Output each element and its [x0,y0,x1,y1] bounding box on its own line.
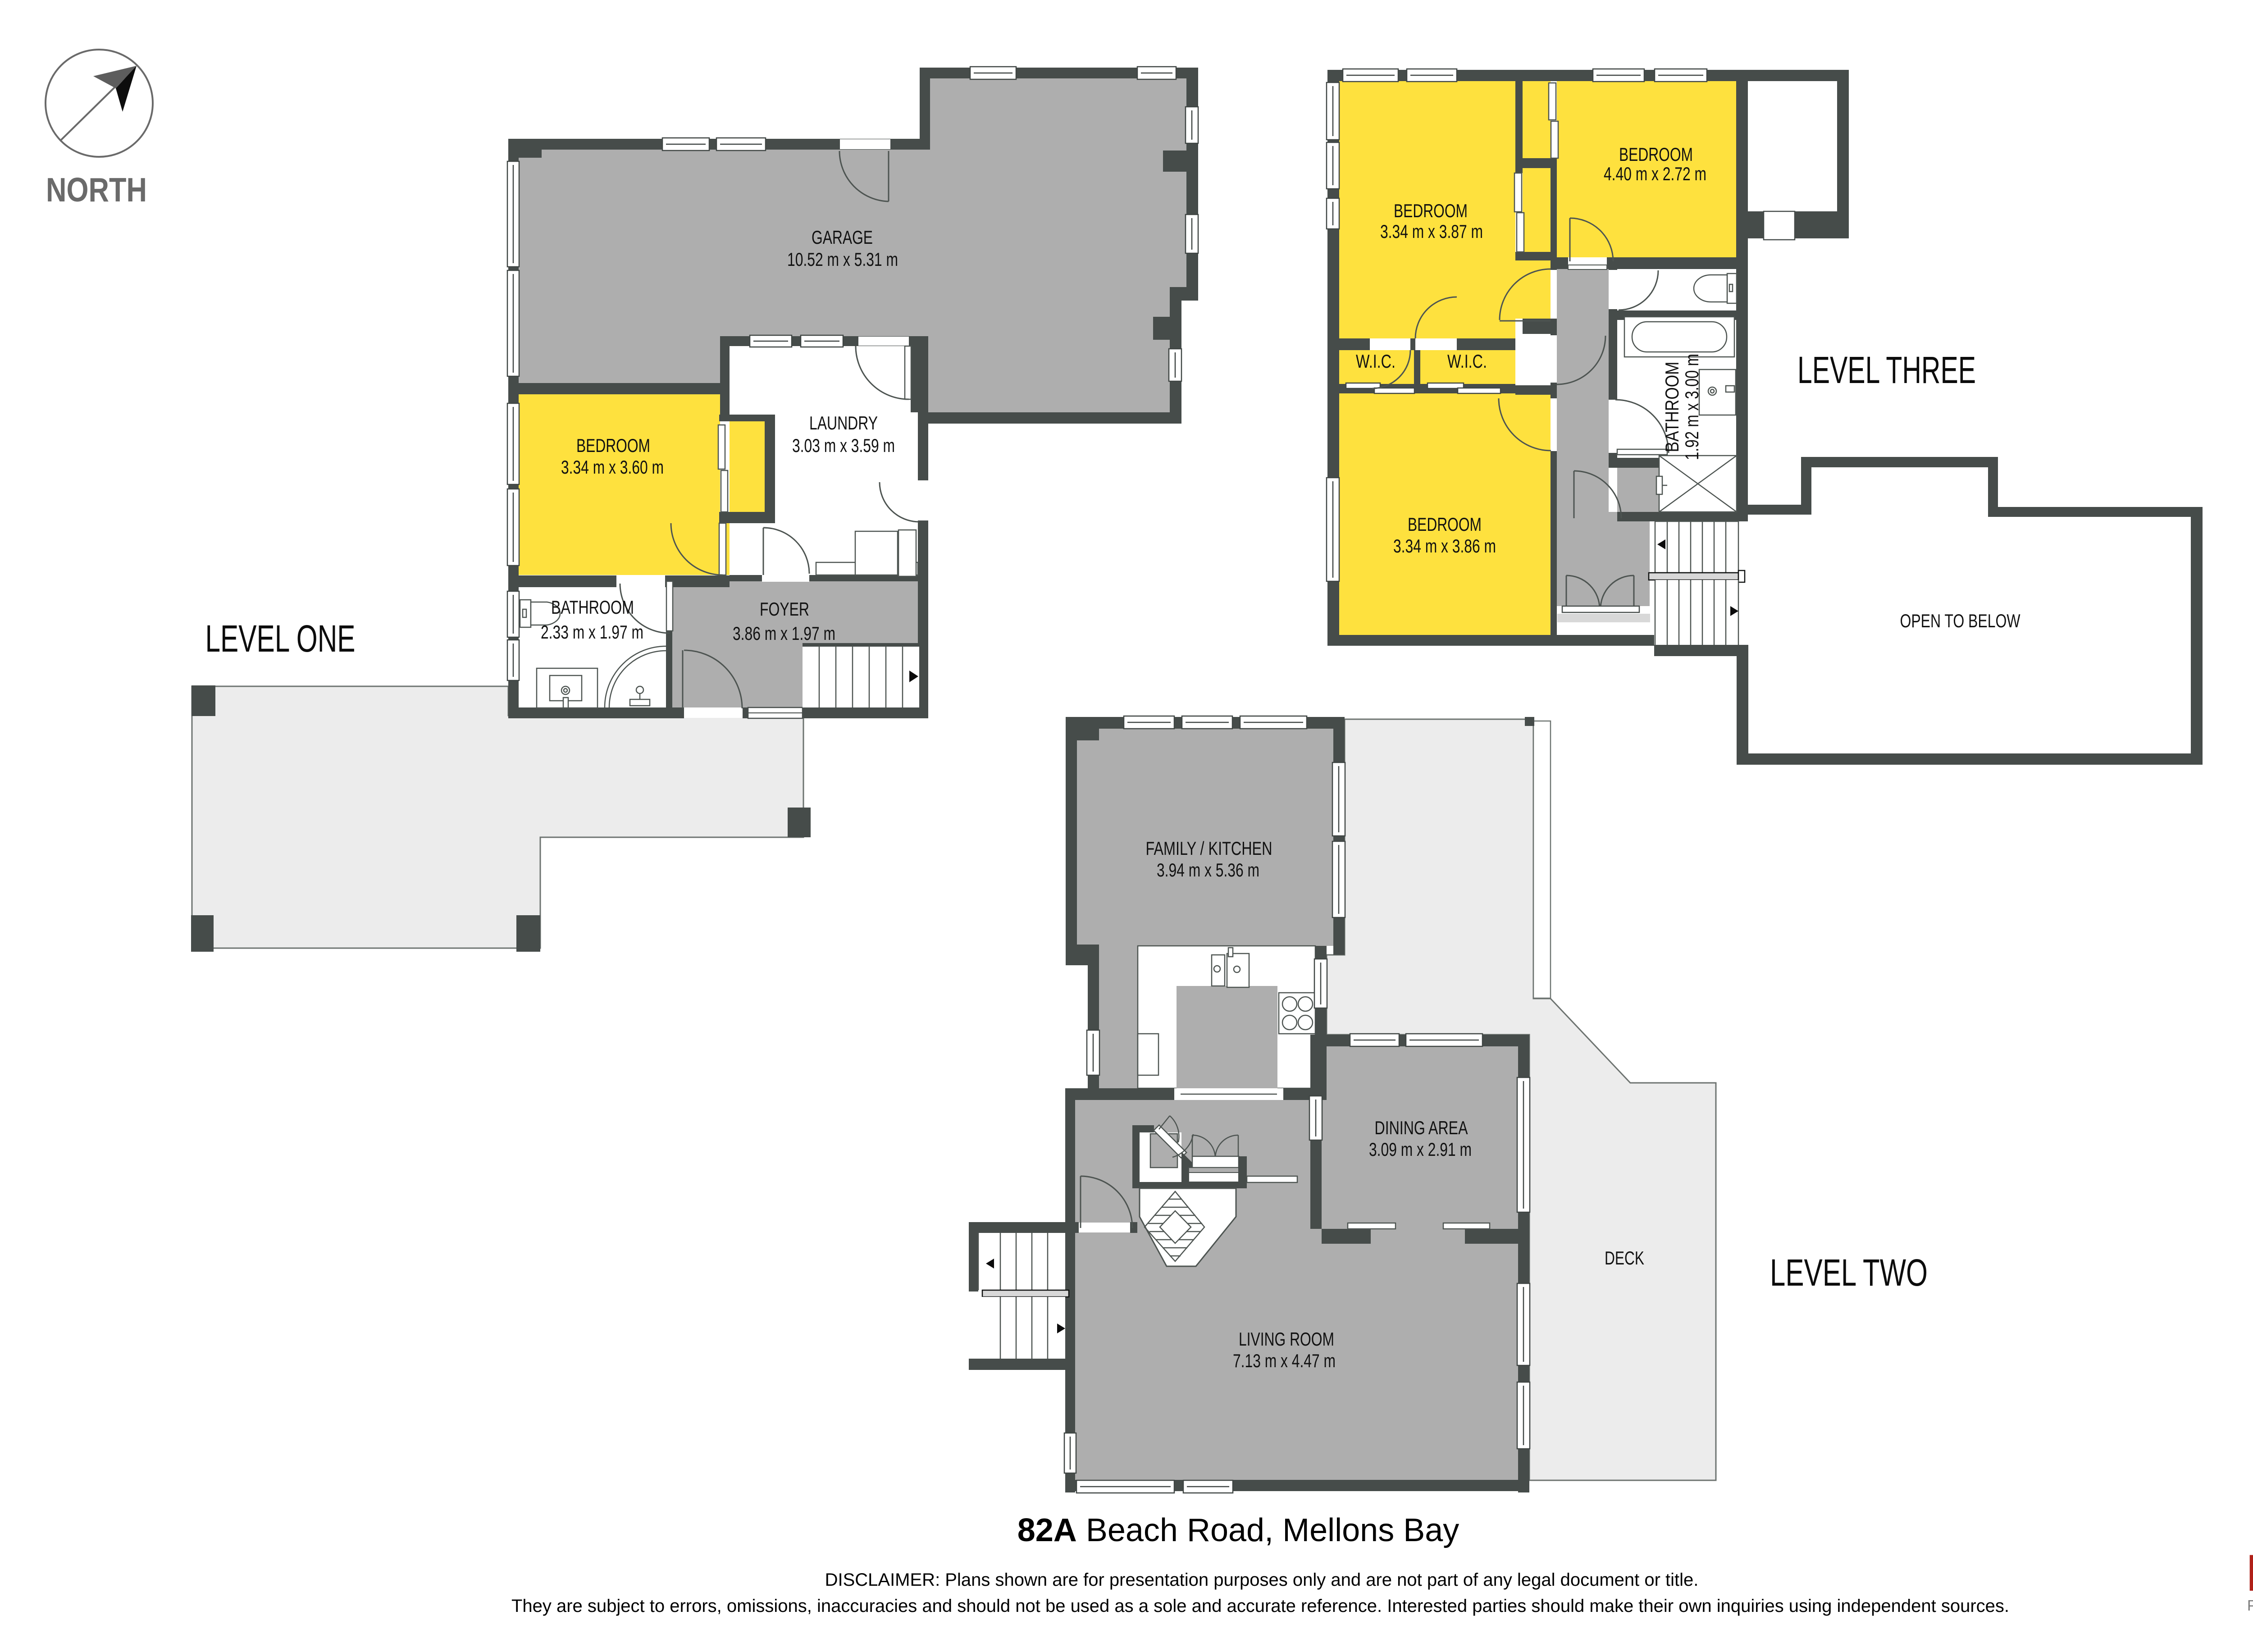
svg-text:3.09 m x 2.91 m: 3.09 m x 2.91 m [1369,1139,1472,1160]
svg-text:3.86 m x 1.97 m: 3.86 m x 1.97 m [733,623,835,644]
svg-text:LAUNDRY: LAUNDRY [809,412,878,434]
svg-text:1.92 m x 3.00 m: 1.92 m x 3.00 m [1681,354,1702,460]
svg-text:BATHROOM: BATHROOM [551,597,634,618]
svg-text:W.I.C.: W.I.C. [1356,351,1396,372]
svg-text:FAMILY / KITCHEN: FAMILY / KITCHEN [1146,838,1272,859]
svg-text:They are subject to errors, om: They are subject to errors, omissions, i… [511,1596,2009,1616]
svg-text:82A Beach Road, Mellons Bay: 82A Beach Road, Mellons Bay [1017,1512,1459,1548]
svg-text:BEDROOM: BEDROOM [1408,514,1482,535]
svg-text:DINING AREA: DINING AREA [1375,1117,1468,1138]
svg-text:FOYER: FOYER [760,598,809,620]
svg-text:GARAGE: GARAGE [812,227,873,248]
svg-text:3.34 m x 3.86 m: 3.34 m x 3.86 m [1393,535,1496,557]
svg-text:Property Marketing Solutions: Property Marketing Solutions [2247,1597,2253,1614]
svg-text:3.03 m x 3.59 m: 3.03 m x 3.59 m [792,435,895,456]
svg-text:Myagent: Myagent [2246,1544,2253,1602]
svg-text:3.94 m x 5.36 m: 3.94 m x 5.36 m [1157,859,1259,881]
svg-text:4.40 m x 2.72 m: 4.40 m x 2.72 m [1604,163,1706,184]
svg-text:LEVEL TWO: LEVEL TWO [1770,1251,1928,1294]
svg-text:7.13 m x 4.47 m: 7.13 m x 4.47 m [1233,1350,1336,1371]
svg-text:DISCLAIMER: Plans shown are fo: DISCLAIMER: Plans shown are for presenta… [825,1570,1699,1590]
svg-text:BEDROOM: BEDROOM [1619,144,1693,165]
svg-text:10.52 m x 5.31 m: 10.52 m x 5.31 m [787,249,898,270]
svg-text:LEVEL ONE: LEVEL ONE [205,617,356,660]
svg-text:2.33 m x 1.97 m: 2.33 m x 1.97 m [541,621,643,643]
svg-text:BEDROOM: BEDROOM [576,435,650,456]
svg-text:3.34 m x 3.87 m: 3.34 m x 3.87 m [1380,221,1483,242]
svg-text:BEDROOM: BEDROOM [1394,200,1468,221]
svg-text:OPEN TO BELOW: OPEN TO BELOW [1900,610,2020,631]
svg-text:DECK: DECK [1605,1247,1644,1269]
svg-text:BATHROOM: BATHROOM [1661,362,1683,452]
svg-text:3.34 m x 3.60 m: 3.34 m x 3.60 m [561,456,664,478]
svg-text:W.I.C.: W.I.C. [1447,351,1487,372]
svg-text:NORTH: NORTH [46,171,147,209]
svg-text:LIVING ROOM: LIVING ROOM [1239,1328,1334,1350]
svg-text:LEVEL THREE: LEVEL THREE [1797,349,1976,391]
